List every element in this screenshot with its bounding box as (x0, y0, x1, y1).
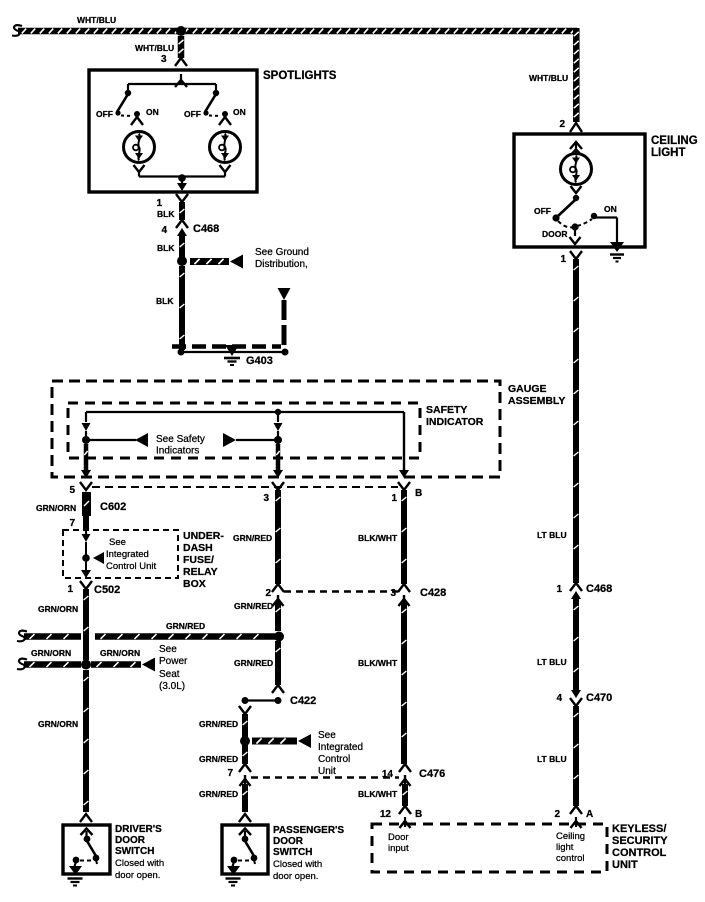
svg-text:OFF: OFF (534, 206, 551, 216)
svg-text:GRN/RED: GRN/RED (199, 789, 238, 799)
svg-text:Control: Control (318, 754, 350, 765)
svg-text:SECURITY: SECURITY (612, 835, 668, 847)
svg-text:BOX: BOX (183, 578, 206, 590)
svg-text:GRN/RED: GRN/RED (199, 754, 238, 764)
svg-text:A: A (586, 809, 593, 820)
svg-text:OFF: OFF (184, 109, 201, 119)
svg-text:2: 2 (559, 119, 565, 130)
svg-text:3: 3 (263, 493, 269, 504)
svg-text:See: See (109, 537, 126, 548)
svg-text:Power: Power (159, 656, 188, 667)
svg-text:door open.: door open. (273, 871, 318, 882)
svg-text:GRN/ORN: GRN/ORN (31, 648, 71, 658)
svg-text:ON: ON (604, 204, 617, 214)
svg-text:GRN/RED: GRN/RED (234, 601, 273, 611)
svg-text:1: 1 (391, 493, 397, 504)
svg-text:14: 14 (382, 769, 394, 780)
svg-text:DOOR: DOOR (115, 835, 146, 846)
svg-text:See: See (318, 730, 336, 741)
svg-text:ON: ON (233, 107, 246, 117)
svg-text:BLK/WHT: BLK/WHT (358, 789, 398, 799)
svg-text:3: 3 (390, 588, 396, 599)
svg-text:C470: C470 (586, 692, 612, 704)
svg-text:CEILING: CEILING (651, 135, 698, 147)
svg-text:C428: C428 (420, 587, 446, 599)
svg-text:C602: C602 (100, 501, 126, 513)
svg-text:UNDER-: UNDER- (183, 530, 224, 542)
svg-text:INDICATOR: INDICATOR (426, 416, 484, 428)
svg-text:ON: ON (146, 107, 159, 117)
svg-text:C422: C422 (290, 695, 316, 707)
svg-text:GAUGE: GAUGE (508, 383, 547, 395)
svg-text:7: 7 (227, 768, 233, 779)
svg-text:Distribution,: Distribution, (255, 259, 308, 270)
svg-text:BLK/WHT: BLK/WHT (358, 658, 398, 668)
svg-text:BLK: BLK (157, 209, 175, 219)
svg-text:FUSE/: FUSE/ (183, 554, 214, 566)
svg-text:SWITCH: SWITCH (115, 846, 154, 857)
svg-text:input: input (388, 843, 409, 854)
svg-text:LT BLU: LT BLU (537, 657, 567, 667)
svg-text:GRN/ORN: GRN/ORN (36, 503, 76, 513)
svg-text:BLK: BLK (157, 243, 175, 253)
svg-text:DOOR: DOOR (273, 836, 304, 847)
svg-text:BLK: BLK (156, 296, 174, 306)
svg-text:DASH: DASH (183, 542, 213, 554)
svg-text:control: control (556, 853, 585, 864)
svg-text:LT BLU: LT BLU (537, 754, 567, 764)
svg-text:GRN/RED: GRN/RED (199, 719, 238, 729)
svg-text:Control Unit: Control Unit (106, 561, 157, 572)
svg-text:7: 7 (69, 518, 75, 529)
svg-text:GRN/RED: GRN/RED (234, 658, 273, 668)
svg-text:3: 3 (161, 54, 167, 65)
svg-text:CONTROL: CONTROL (612, 847, 667, 859)
svg-text:C468: C468 (586, 583, 612, 595)
svg-text:UNIT: UNIT (612, 859, 638, 871)
svg-text:G403: G403 (246, 355, 273, 367)
svg-text:SAFETY: SAFETY (426, 404, 467, 416)
svg-text:WHT/BLU: WHT/BLU (529, 73, 568, 83)
svg-text:DRIVER'S: DRIVER'S (115, 824, 162, 835)
svg-text:PASSENGER'S: PASSENGER'S (273, 825, 344, 836)
svg-text:Integrated: Integrated (318, 742, 363, 753)
svg-text:B: B (415, 809, 422, 820)
svg-text:1: 1 (560, 254, 566, 265)
svg-text:5: 5 (69, 485, 75, 496)
svg-text:See Ground: See Ground (255, 247, 309, 258)
svg-text:(3.0L): (3.0L) (159, 681, 185, 692)
svg-text:2: 2 (265, 588, 271, 599)
svg-text:2: 2 (554, 809, 560, 820)
svg-text:C476: C476 (419, 768, 445, 780)
svg-text:Door: Door (388, 832, 409, 843)
svg-text:1: 1 (556, 584, 562, 595)
svg-text:Closed with: Closed with (115, 858, 164, 869)
svg-text:GRN/ORN: GRN/ORN (38, 604, 78, 614)
svg-text:OFF: OFF (96, 109, 113, 119)
svg-text:door open.: door open. (115, 870, 160, 881)
svg-text:LT BLU: LT BLU (537, 530, 567, 540)
svg-text:Ceiling: Ceiling (556, 831, 585, 842)
svg-text:C502: C502 (94, 584, 120, 596)
svg-text:BLK/WHT: BLK/WHT (358, 533, 398, 543)
svg-text:1: 1 (67, 584, 73, 595)
svg-text:DOOR: DOOR (542, 229, 568, 239)
svg-text:See Safety: See Safety (156, 434, 205, 445)
svg-text:See: See (159, 644, 177, 655)
svg-text:RELAY: RELAY (183, 566, 218, 578)
svg-text:KEYLESS/: KEYLESS/ (612, 823, 666, 835)
svg-text:1: 1 (156, 198, 162, 209)
svg-text:LIGHT: LIGHT (651, 147, 686, 159)
svg-text:Integrated: Integrated (106, 549, 149, 560)
svg-text:Unit: Unit (318, 766, 336, 777)
svg-text:GRN/ORN: GRN/ORN (38, 719, 78, 729)
svg-text:Indicators: Indicators (156, 446, 199, 457)
svg-text:Seat: Seat (159, 669, 180, 680)
svg-text:GRN/RED: GRN/RED (166, 621, 205, 631)
svg-text:GRN/ORN: GRN/ORN (100, 648, 140, 658)
svg-text:4: 4 (556, 693, 562, 704)
svg-text:GRN/RED: GRN/RED (233, 533, 272, 543)
svg-text:SPOTLIGHTS: SPOTLIGHTS (263, 70, 337, 82)
svg-text:light: light (556, 842, 574, 853)
svg-text:WHT/BLU: WHT/BLU (77, 15, 116, 25)
svg-text:WHT/BLU: WHT/BLU (135, 43, 174, 53)
svg-text:ASSEMBLY: ASSEMBLY (508, 395, 565, 407)
svg-text:C468: C468 (193, 223, 219, 235)
svg-text:4: 4 (161, 225, 167, 236)
svg-text:Closed with: Closed with (273, 859, 322, 870)
svg-text:12: 12 (380, 809, 392, 820)
svg-text:SWITCH: SWITCH (273, 847, 312, 858)
svg-text:B: B (415, 488, 422, 499)
